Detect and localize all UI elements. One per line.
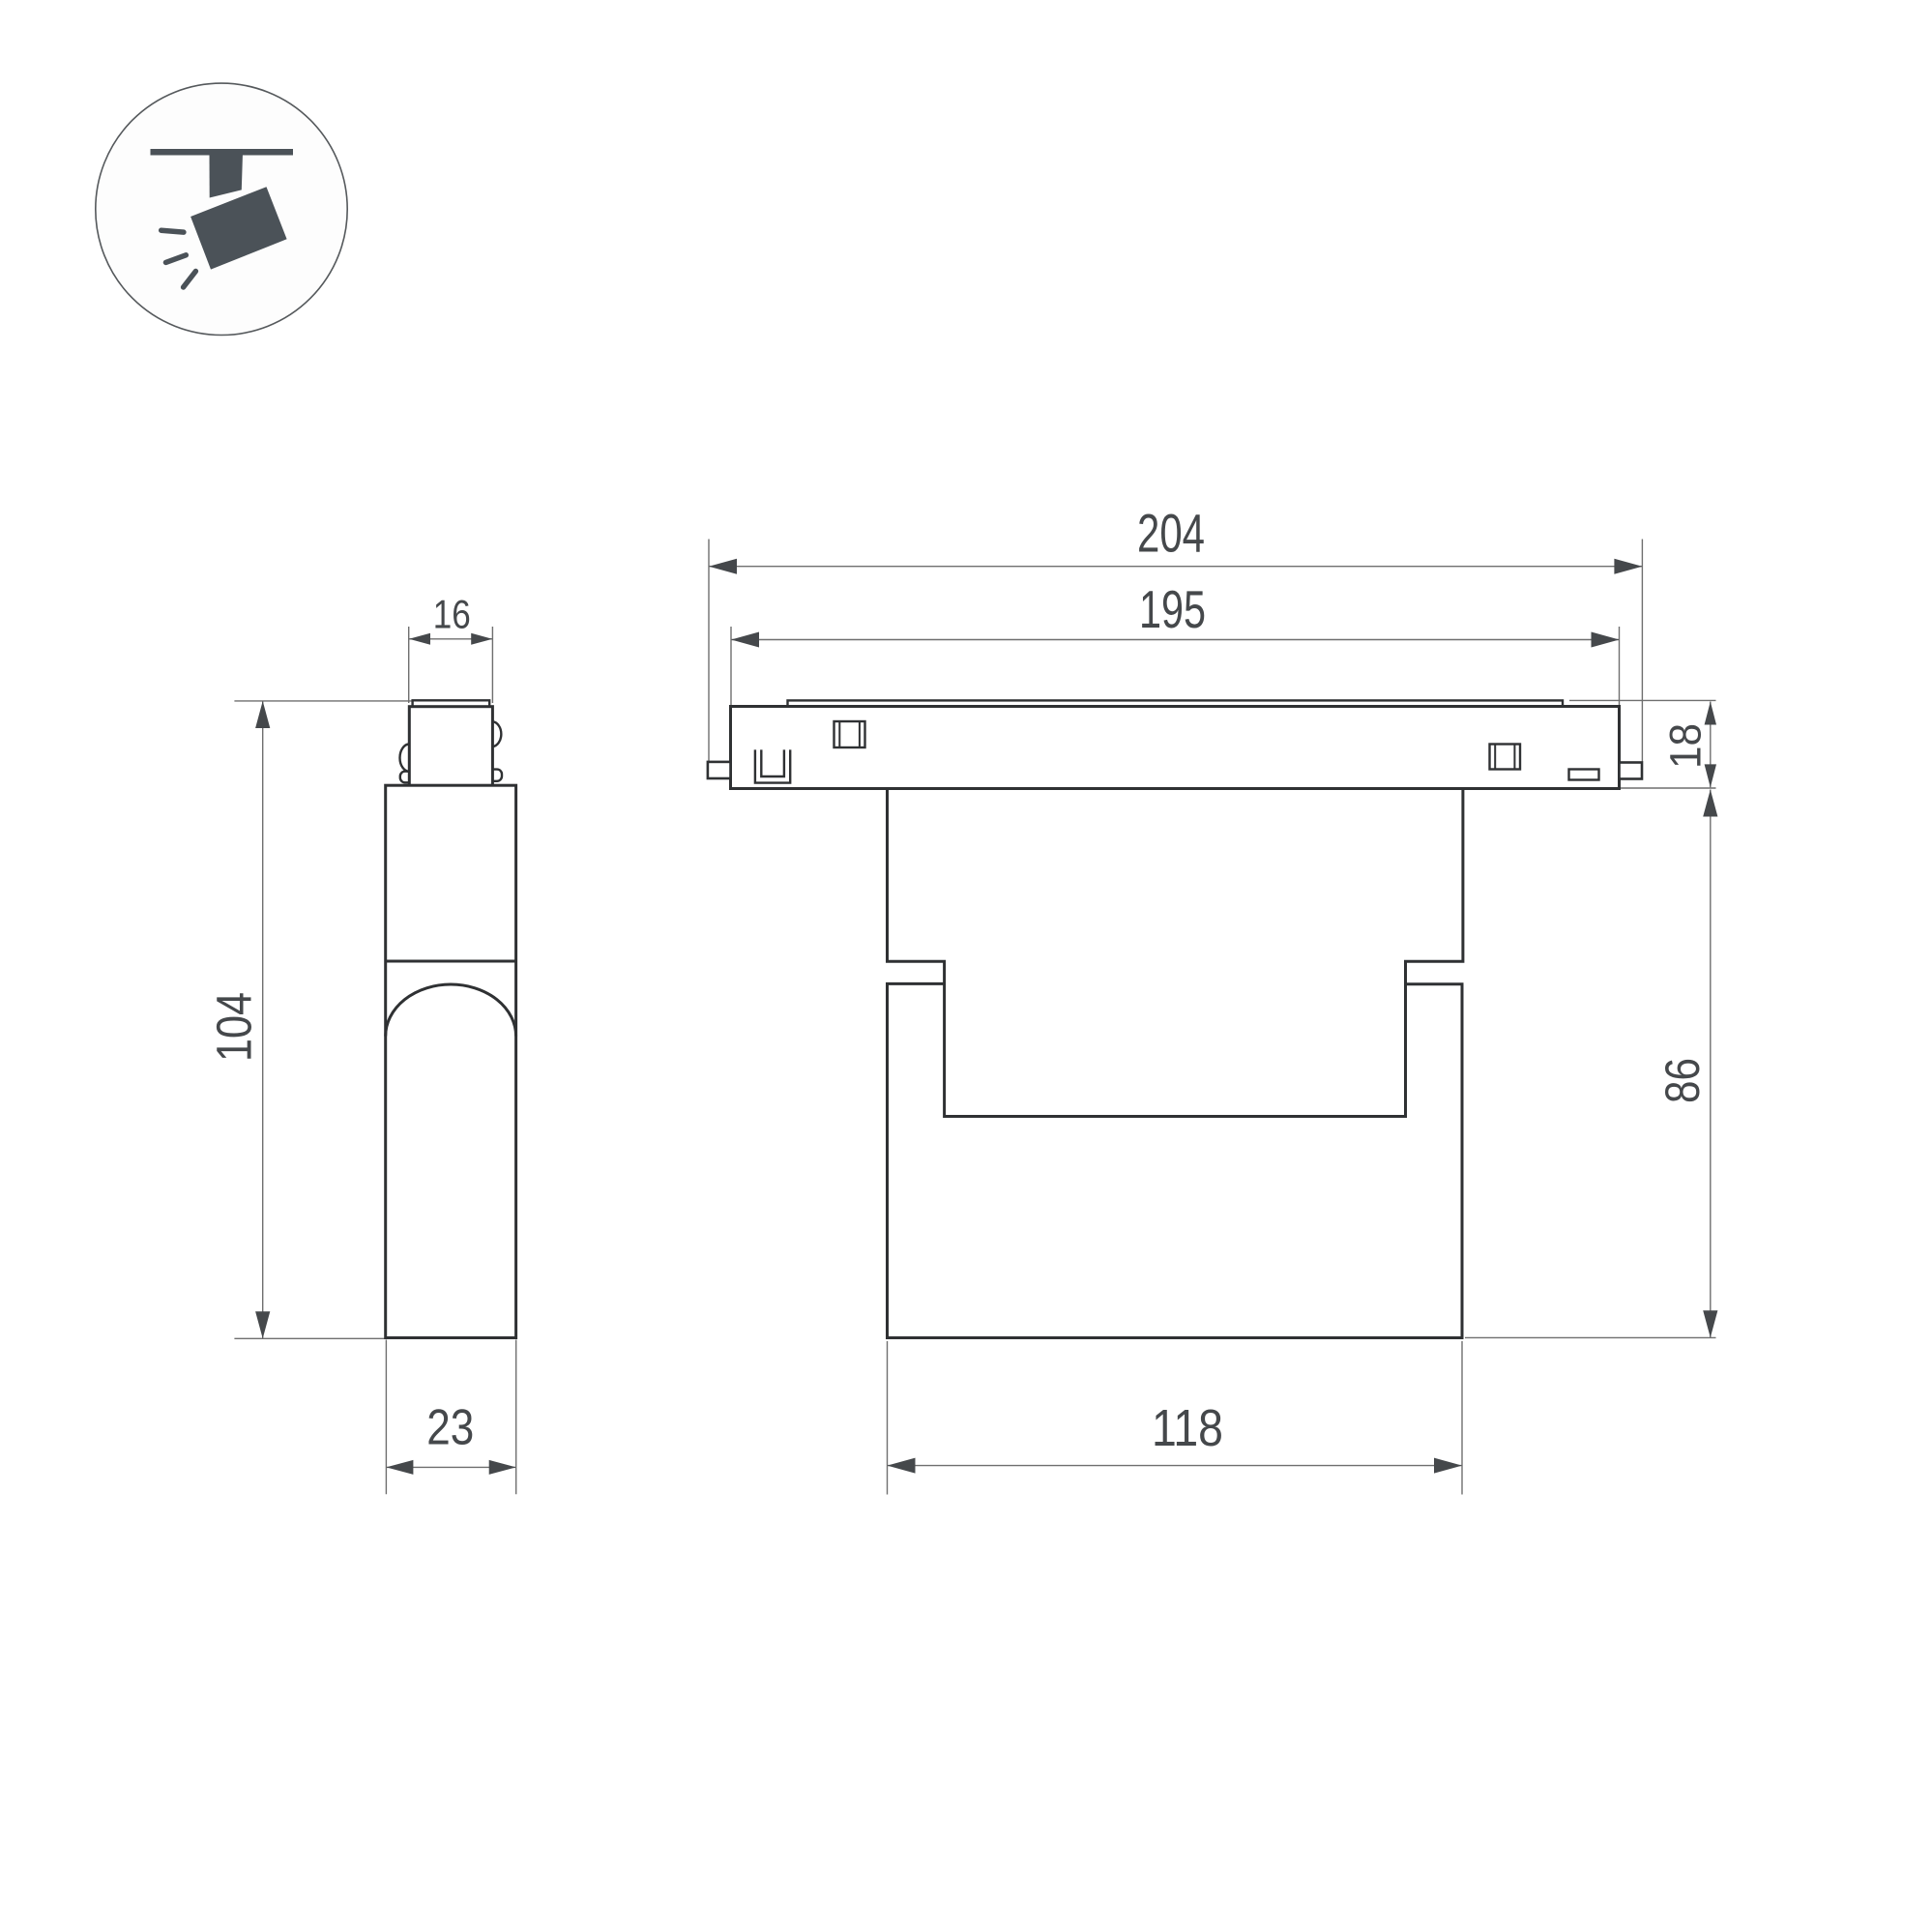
svg-text:23: 23	[426, 1399, 474, 1455]
svg-text:104: 104	[207, 992, 262, 1062]
svg-text:18: 18	[1661, 723, 1711, 769]
svg-text:118: 118	[1152, 1399, 1223, 1457]
svg-text:16: 16	[433, 592, 471, 637]
svg-text:204: 204	[1137, 503, 1205, 564]
svg-text:86: 86	[1655, 1058, 1710, 1103]
svg-text:195: 195	[1139, 579, 1206, 639]
